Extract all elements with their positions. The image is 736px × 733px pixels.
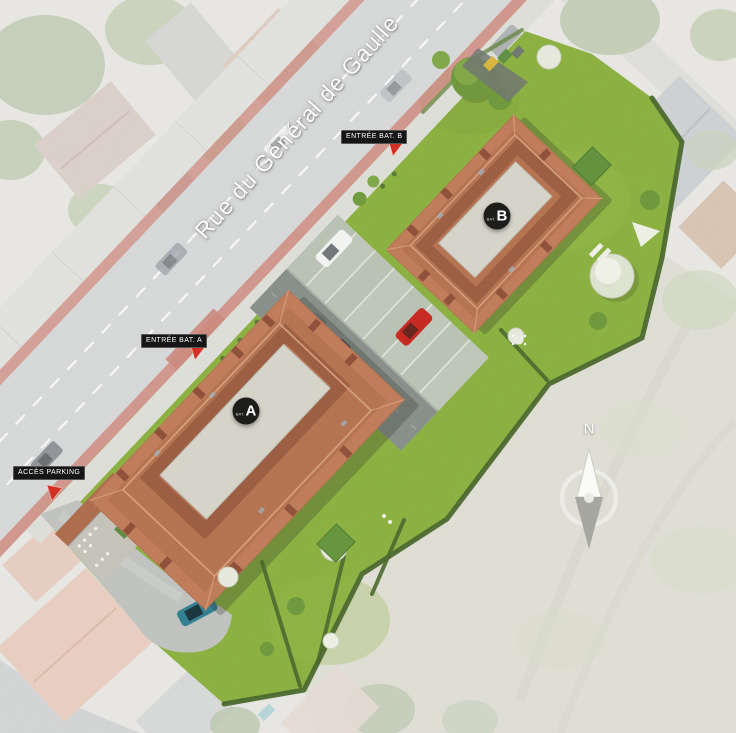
building-a-badge-prefix: BAT. xyxy=(236,411,245,416)
building-a-badge-letter: A xyxy=(246,403,257,420)
building-a-badge: BAT. A xyxy=(233,398,260,425)
compass-north-label: N xyxy=(584,421,595,438)
photo-grain-overlay xyxy=(0,0,736,733)
building-b-badge: BAT. B xyxy=(484,203,511,230)
entrance-b-label: ENTRÉE BAT. B xyxy=(341,130,407,144)
building-b-badge-prefix: BAT. xyxy=(487,216,496,221)
building-b-badge-letter: B xyxy=(497,208,508,225)
site-plan-image: Rue du Général de Gaulle ENTRÉE BAT. B E… xyxy=(0,0,736,733)
site-plan-scene xyxy=(0,0,736,733)
parking-access-label: ACCÈS PARKING xyxy=(13,466,85,480)
entrance-a-label: ENTRÉE BAT. A xyxy=(141,334,207,348)
